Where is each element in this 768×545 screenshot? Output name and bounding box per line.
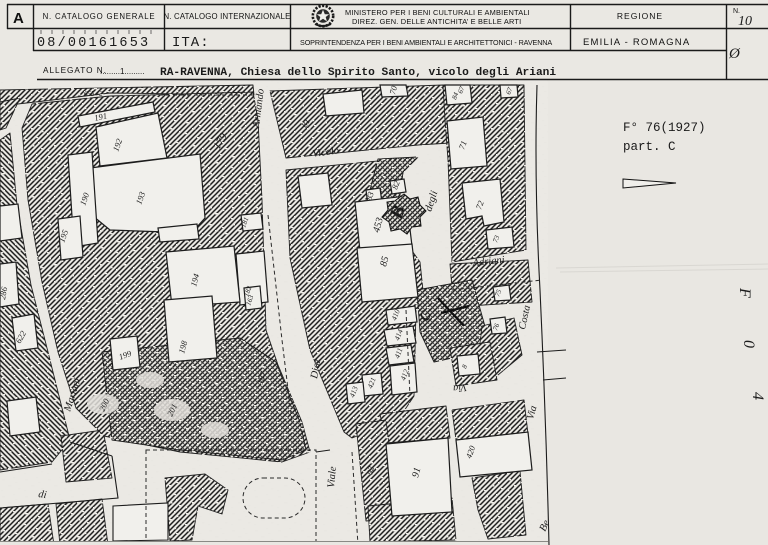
svg-text:.........1.........: .........1......... — [100, 67, 144, 76]
svg-text:A: A — [13, 10, 24, 27]
svg-text:DIREZ. GEN. DELLE ANTICHITA’ E: DIREZ. GEN. DELLE ANTICHITA’ E BELLE ART… — [352, 17, 521, 26]
svg-text:ITA:: ITA: — [172, 35, 210, 51]
svg-text:RA-RAVENNA, Chiesa dello Spiri: RA-RAVENNA, Chiesa dello Spirito Santo, … — [160, 67, 556, 79]
svg-text:Ø: Ø — [728, 46, 741, 62]
svg-text:EMILIA - ROMAGNA: EMILIA - ROMAGNA — [583, 37, 690, 48]
svg-text:REGIONE: REGIONE — [617, 11, 663, 21]
svg-text:N. CATALOGO GENERALE: N. CATALOGO GENERALE — [43, 12, 156, 21]
svg-text:F: F — [736, 287, 753, 298]
svg-text:10: 10 — [738, 14, 752, 29]
svg-text:part. C: part. C — [623, 140, 676, 154]
svg-text:4: 4 — [749, 392, 766, 400]
svg-text:SOPRINTENDENZA PER I BENI AMBI: SOPRINTENDENZA PER I BENI AMBIENTALI E A… — [300, 38, 552, 47]
svg-text:di: di — [38, 489, 48, 501]
svg-text:F° 76(1927): F° 76(1927) — [623, 121, 706, 135]
svg-text:655+2: 655+2 — [84, 90, 103, 98]
svg-text:Viale: Viale — [326, 466, 339, 489]
svg-text:0: 0 — [740, 340, 757, 348]
svg-text:MINISTERO PER I BENI CULTURALI: MINISTERO PER I BENI CULTURALI E AMBIENT… — [345, 8, 530, 17]
svg-text:Via: Via — [452, 381, 467, 393]
svg-text:N. CATALOGO INTERNAZIONALE: N. CATALOGO INTERNAZIONALE — [163, 12, 290, 21]
svg-text:ALLEGATO N.: ALLEGATO N. — [43, 66, 107, 75]
svg-text:08/00161653: 08/00161653 — [37, 36, 150, 51]
